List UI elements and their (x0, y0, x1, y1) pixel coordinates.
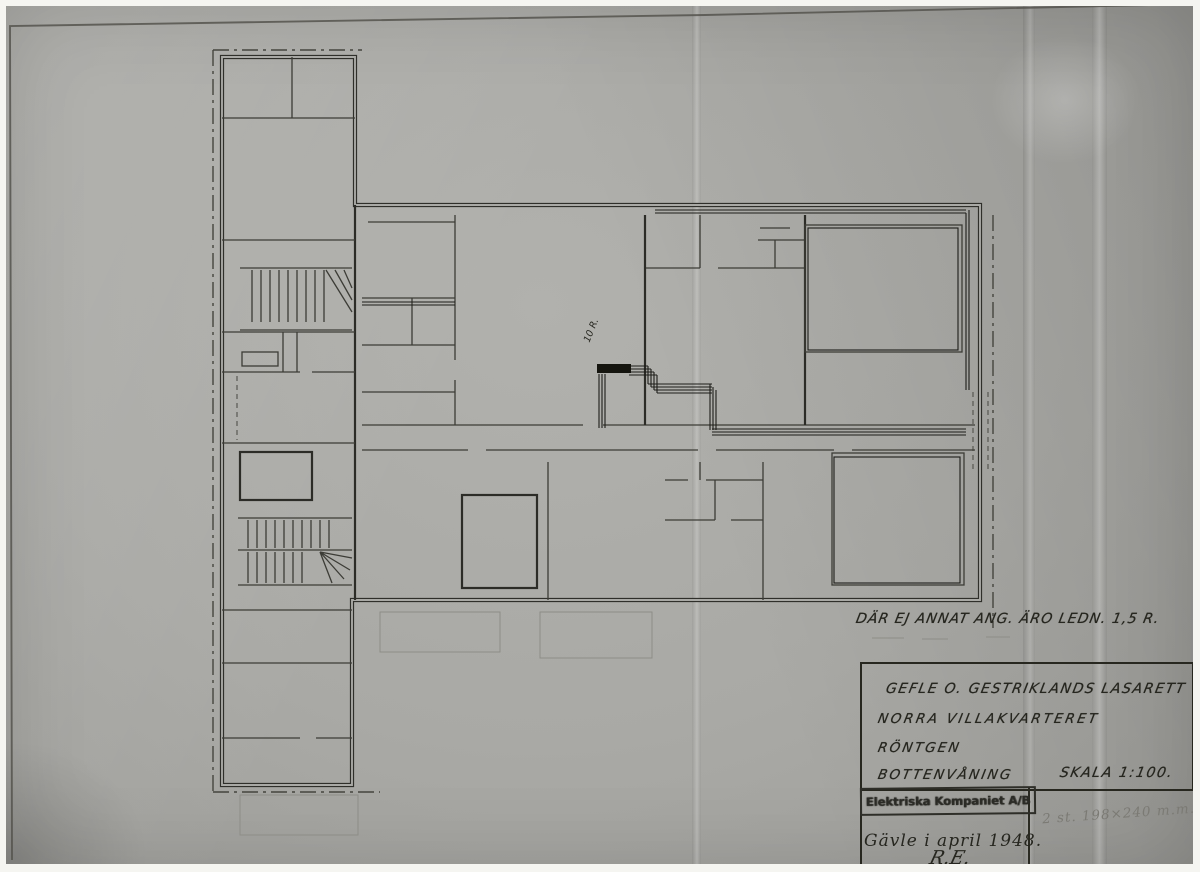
title-floor: BOTTENVÅNING (876, 767, 1014, 783)
staircases (238, 268, 352, 585)
conduit-runs (362, 210, 969, 583)
title-hospital: GEFLE O. GESTRIKLANDS LASARETT (884, 681, 1187, 697)
title-department: RÖNTGEN (876, 740, 962, 756)
signature: R.E. (927, 847, 973, 869)
title-block: GEFLE O. GESTRIKLANDS LASARETT NORRA VIL… (860, 662, 1194, 791)
company-stamp: Elektriska Kompaniet A/B (860, 786, 1036, 816)
title-quarter: NORRA VILLAKVARTERET (876, 711, 1100, 727)
wiring-note: DÄR EJ ANNAT ANG. ÄRO LEDN. 1,5 R. (854, 611, 1161, 627)
photographed-drawing: DÄR EJ ANNAT ANG. ÄRO LEDN. 1,5 R. 10 R.… (0, 0, 1200, 872)
title-scale: SKALA 1:100. (1058, 765, 1175, 781)
distribution-board-bar (597, 364, 631, 373)
